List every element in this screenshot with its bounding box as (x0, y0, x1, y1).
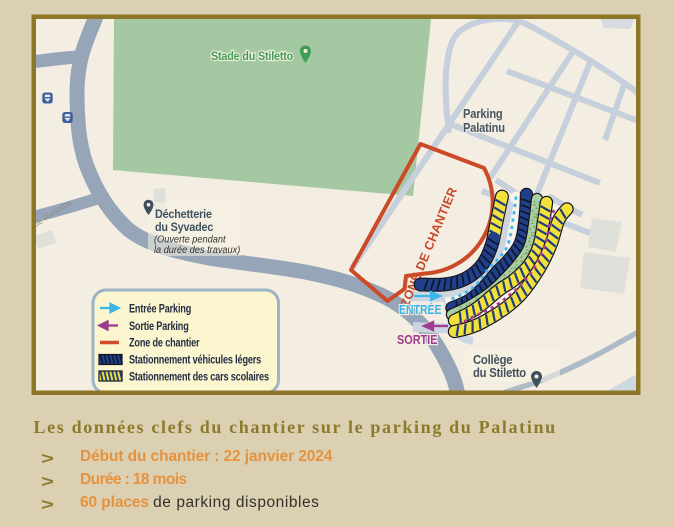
svg-text:Zone de chantier: Zone de chantier (129, 336, 199, 350)
svg-text:Palatinu: Palatinu (463, 120, 505, 135)
svg-text:Déchetterie: Déchetterie (155, 209, 212, 222)
svg-text:du Stiletto: du Stiletto (473, 365, 526, 380)
svg-text:Stationnement véhicules légers: Stationnement véhicules légers (129, 353, 261, 367)
svg-text:Parking: Parking (463, 106, 503, 121)
svg-text:Sortie Parking: Sortie Parking (129, 320, 189, 334)
svg-text:ENTRÉE: ENTRÉE (399, 303, 442, 317)
svg-text:SORTIE: SORTIE (397, 333, 438, 347)
svg-text:Stade du Stiletto: Stade du Stiletto (211, 51, 293, 64)
svg-text:du Syvadec: du Syvadec (155, 222, 214, 235)
svg-text:Stationnement des cars scolair: Stationnement des cars scolaires (129, 370, 269, 384)
svg-text:la durée des travaux): la durée des travaux) (154, 245, 240, 256)
svg-text:Entrée Parking: Entrée Parking (129, 302, 191, 316)
